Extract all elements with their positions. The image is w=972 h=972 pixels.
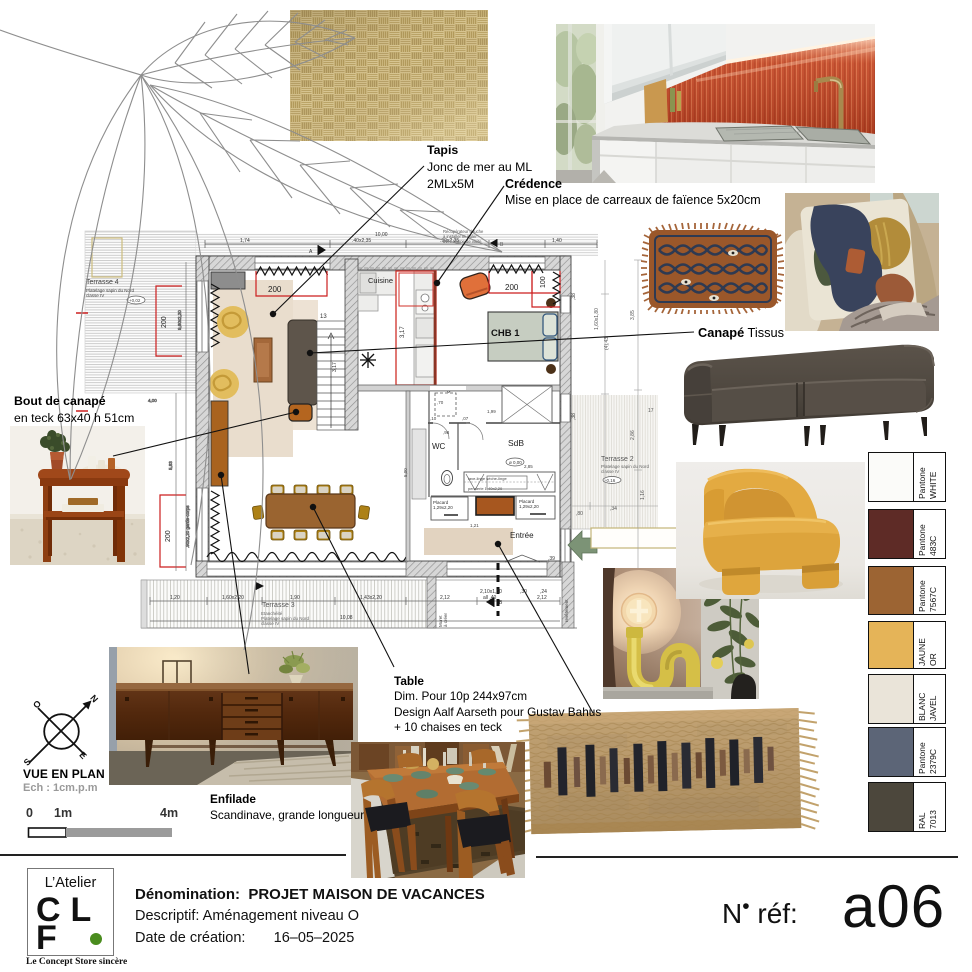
svg-text:O: O (31, 698, 43, 710)
svg-text:S: S (22, 756, 33, 767)
svg-text:E: E (77, 750, 88, 761)
